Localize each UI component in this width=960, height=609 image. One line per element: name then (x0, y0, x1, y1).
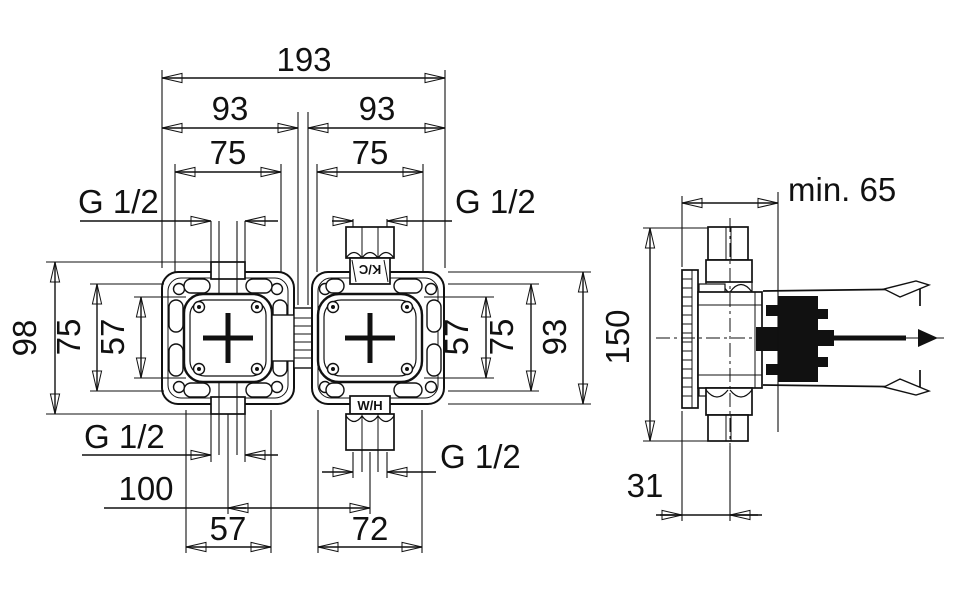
dim-left-width: 93 (212, 90, 249, 127)
plate-slot (246, 279, 272, 293)
thread-label-top-right: G 1/2 (455, 183, 536, 220)
dim-total-width: 193 (276, 41, 331, 78)
technical-drawing: K/C W/H (0, 0, 960, 609)
dim-right-mid-height: 75 (483, 319, 520, 356)
dim-right-pitch: 75 (352, 134, 389, 171)
thread-label-bottom-left: G 1/2 (84, 418, 165, 455)
dim-left-body-width: 57 (210, 510, 247, 547)
dim-right-width: 93 (359, 90, 396, 127)
plate-slot (169, 300, 183, 332)
plate-hole (426, 284, 437, 295)
dim-right-body-width: 72 (352, 510, 389, 547)
dim-left-inner-height: 57 (94, 319, 131, 356)
plate-slot (169, 344, 183, 376)
plate-slot (326, 383, 344, 397)
dim-flange-to-axis: 31 (627, 467, 664, 504)
dim-port-spacing: 100 (118, 470, 173, 507)
dim-left-pitch: 75 (210, 134, 247, 171)
sleeve-clip-top (884, 281, 929, 297)
plate-slot (184, 383, 210, 397)
top-hex-nut (346, 227, 394, 258)
side-bottom-nut (706, 388, 752, 415)
sleeve-clip-bottom (884, 379, 929, 395)
plate-slot (184, 279, 210, 293)
cold-marking-label: K/C (358, 262, 381, 277)
dim-min-depth: min. 65 (788, 171, 896, 208)
left-bottom-port (211, 397, 245, 414)
side-body (656, 218, 944, 458)
plate-slot (394, 279, 422, 293)
right-valve-body: K/C W/H (312, 227, 444, 450)
right-dimensions: 57 75 93 (424, 272, 591, 404)
side-view: min. 65 150 31 (599, 171, 944, 521)
dim-left-outer-height: 98 (6, 320, 43, 357)
plate-slot (394, 383, 422, 397)
warm-marking-label: W/H (357, 398, 382, 413)
side-top-nut (706, 260, 752, 282)
drawing-page: K/C W/H (0, 0, 960, 609)
plate-hole (426, 382, 437, 393)
thread-label-bottom-right: G 1/2 (440, 438, 521, 475)
dim-right-inner-height: 57 (438, 319, 475, 356)
side-bottom-pipe (708, 415, 748, 441)
top-dimensions: 193 93 93 75 75 G 1/2 G 1/2 (78, 41, 536, 305)
plate-hole (272, 284, 283, 295)
dim-right-outer-height: 93 (536, 319, 573, 356)
plate-hole (174, 284, 185, 295)
left-top-port (211, 262, 245, 279)
plate-slot (246, 383, 272, 397)
dim-left-mid-height: 75 (50, 319, 87, 356)
bottom-dimensions: G 1/2 100 57 72 G 1/2 (82, 382, 521, 553)
plate-hole (174, 382, 185, 393)
thread-label-top-left: G 1/2 (78, 183, 159, 220)
dim-side-height: 150 (599, 309, 636, 364)
plate-slot (326, 279, 344, 293)
side-top-pipe (708, 227, 748, 260)
bottom-hex-nut (346, 414, 394, 450)
plate-hole (272, 382, 283, 393)
front-view: K/C W/H (6, 41, 591, 553)
